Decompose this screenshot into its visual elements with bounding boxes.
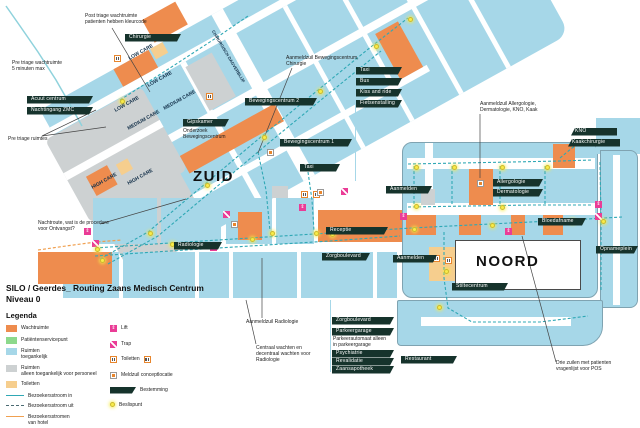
destination-tag-gipskamer: Gipskamer — [183, 119, 229, 127]
destination-tag-zaansapotheek: Zaansapotheek — [332, 366, 394, 374]
room-block — [272, 186, 288, 198]
decision-point-icon — [414, 165, 419, 170]
legend-item-meldzuil-conceptlocatie-label: Meldzuil conceptlocatie — [121, 372, 173, 378]
room-block — [459, 215, 481, 235]
stairs-icon — [92, 240, 99, 247]
legend-panel: SILO / Geerdes_ Routing Zaans Medisch Ce… — [6, 283, 226, 428]
decision-point-icon — [374, 44, 379, 49]
decision-point-icon — [500, 165, 505, 170]
lift-icon: ⇕ — [505, 228, 512, 235]
legend-item-meldzuil-conceptlocatie: Meldzuil conceptlocatie — [110, 372, 222, 379]
destination-tag-dermatologie: Dermatologie — [493, 189, 543, 197]
area-label-zuid: ZUID — [193, 168, 234, 185]
destination-tag-stiltecentrum: Stiltecentrum — [452, 283, 508, 291]
legend-item-pati-ntenservicepunt: Patiëntenservicepunt — [6, 337, 110, 344]
decision-point-icon — [412, 227, 417, 232]
room-block — [355, 66, 356, 181]
decision-point-icon — [444, 269, 449, 274]
decision-point-icon — [500, 205, 505, 210]
legend-item-ruimten: Ruimten toegankelijk — [6, 348, 110, 360]
destination-tag-taxi: Taxi — [356, 67, 402, 75]
destination-tag-restaurant: Restaurant — [401, 356, 457, 364]
legend-item-toiletten: Toiletten — [110, 356, 222, 363]
callout-post-triage-wachtruimte-patiente: Post triage wachtruimte patienten hebben… — [85, 13, 147, 25]
room-block — [330, 300, 331, 372]
legend-heading: Legenda — [6, 311, 226, 320]
legend-flow-line — [6, 405, 24, 406]
lift-icon: ⇕ — [299, 204, 306, 211]
legend-item-toiletten-label: Toiletten — [121, 356, 140, 362]
destination-tag-fietsenstalling: Fietsenstalling — [356, 100, 402, 108]
decision-point-icon — [601, 219, 606, 224]
room-block — [238, 212, 262, 240]
toilet-icon — [110, 356, 117, 363]
decision-point-icon — [262, 135, 267, 140]
legend-swatch — [6, 348, 17, 355]
destination-tag-bewegingscentrum-1: Bewegingscentrum 1 — [280, 139, 352, 147]
destination-tag-nachtingang-zmc: Nachtingang ZMC — [27, 107, 93, 115]
toilet-icon — [144, 356, 151, 363]
noord-south-band — [397, 300, 603, 346]
legend-swatch — [6, 381, 17, 388]
radiologie-block — [38, 252, 112, 284]
destination-tag-kiss-and-ride: Kiss and ride — [356, 89, 402, 97]
legend-item-toiletten: Toiletten — [6, 381, 110, 388]
destination-tag-bloedafname: Bloedafname — [538, 218, 586, 226]
legend-item-wachtruimte-label: Wachtruimte — [21, 325, 49, 331]
decision-point-icon — [100, 258, 105, 263]
legend-item-beslispunt: Beslispunt — [110, 402, 222, 408]
callout-aanmeldzuil-allergologie-dermato: Aanmeldzuil Allergologie, Dermatologie, … — [480, 101, 538, 113]
destination-tag-sample — [110, 387, 136, 394]
destination-tag-parkeergarage: Parkeergarage — [332, 328, 394, 336]
legend-item-trap: Trap — [110, 341, 222, 348]
callout-parkeerautomaat-alleen-in-parkee: Parkeerautomaat alleen in parkeergarage — [333, 336, 386, 348]
destination-tag-aanmelden: Aanmelden — [386, 186, 432, 194]
destination-tag-taxi: Taxi — [300, 164, 340, 172]
routing-map-canvas: ⇕⇕⇕⇕⇕⇕ ChirurgieAcuut centrumNachtingang… — [0, 0, 640, 428]
room-block — [276, 198, 314, 244]
destination-tag-acuut-centrum: Acuut centrum — [27, 96, 93, 104]
decision-point-icon — [452, 165, 457, 170]
callout-onderzoek-bewegingscentrum: Onderzoek Bewegingscentrum — [183, 128, 226, 140]
legend-item-lift-label: Lift — [121, 325, 128, 331]
lift-icon: ⇕ — [400, 213, 407, 220]
destination-tag-aanmelden: Aanmelden — [393, 255, 437, 263]
destination-tag-receptie: Receptie — [326, 227, 388, 235]
legend-flow-line — [6, 395, 24, 396]
room-block — [150, 42, 168, 59]
room-block — [233, 252, 297, 298]
legend-item-bezoekersstroom-uit: Bezoekersstroom uit — [6, 403, 110, 409]
destination-tag-psychiatrie: Psychiatrie — [332, 350, 394, 358]
legend-item-beslispunt-label: Beslispunt — [119, 402, 142, 408]
legend-item-bezoekersstroom-in-label: Bezoekersstroom in — [28, 393, 72, 399]
callout-pre-triage-wachtruimte-5-minuten: Pre triage wachtruimte 5 minuten max — [12, 60, 62, 72]
decision-point-icon — [437, 305, 442, 310]
decision-point-icon — [148, 231, 153, 236]
destination-tag-zorgboulevard: Zorgboulevard — [332, 317, 394, 325]
meldzuil-icon — [317, 189, 324, 196]
destination-tag-allergologie: Allergologie — [493, 179, 543, 187]
stairs-icon — [341, 188, 348, 195]
callout-drie-zuilen-met-patienten-vragen: Drie zuilen met patienten vragenlijst vo… — [556, 360, 611, 372]
room-block — [421, 317, 571, 326]
room-block — [406, 215, 436, 235]
room-block — [469, 169, 493, 205]
decision-point-icon — [408, 17, 413, 22]
opnameplein-strip — [600, 150, 638, 308]
destination-tag-zorgboulevard: Zorgboulevard — [322, 253, 370, 261]
legend-swatch — [6, 325, 17, 332]
toilet-icon — [206, 93, 213, 100]
toilet-icon — [114, 55, 121, 62]
room-block — [553, 144, 575, 168]
meldzuil-icon — [267, 149, 274, 156]
legend-item-lift: ⇕Lift — [110, 325, 222, 332]
destination-tag-bus: Bus — [356, 78, 402, 86]
kno-wing — [596, 118, 640, 154]
stairs-icon — [223, 211, 230, 218]
room-block — [116, 158, 133, 175]
legend-swatch — [6, 337, 17, 344]
map-subtitle: Niveau 0 — [6, 294, 226, 305]
legend-flow-line — [6, 416, 24, 417]
toilet-icon — [445, 257, 452, 264]
lift-icon: ⇕ — [110, 325, 117, 332]
meldzuil-icon — [231, 221, 238, 228]
area-label-noord: NOORD — [476, 253, 539, 270]
callout-nachtroute-wat-is-de-procedure-v: Nachtroute, wat is de procedure voor Ont… — [38, 220, 109, 232]
decision-point-icon — [314, 231, 319, 236]
lift-icon: ⇕ — [595, 201, 602, 208]
room-block — [511, 215, 525, 235]
destination-tag-revalidatie: Revalidatie — [332, 358, 394, 366]
legend-item-toiletten-label: Toiletten — [21, 381, 40, 387]
destination-tag-opnameplein: Opnameplein — [596, 246, 638, 254]
decision-point-icon — [414, 204, 419, 209]
receptie-block — [318, 210, 402, 242]
map-title: SILO / Geerdes_ Routing Zaans Medisch Ce… — [6, 283, 226, 294]
destination-tag-kno: KNO — [571, 128, 617, 136]
decision-point-icon — [270, 231, 275, 236]
decision-point-icon — [318, 89, 323, 94]
room-block — [161, 198, 221, 244]
room-block — [613, 155, 620, 305]
legend-item-trap-label: Trap — [121, 341, 131, 347]
callout-pre-triage-ruimtes: Pre triage ruimtes — [8, 136, 47, 142]
legend-swatch — [6, 365, 17, 372]
legend-item-ruimten-label: Ruimten toegankelijk — [21, 348, 47, 360]
legend-item-bestemming-label: Bestemming — [140, 387, 168, 393]
decision-point-icon — [110, 402, 115, 407]
callout-centraal-wachten-en-decentraal-w: Centraal wachten en decentraal wachten v… — [256, 345, 310, 363]
destination-tag-bewegingscentrum-2: Bewegingscentrum 2 — [245, 98, 317, 106]
legend-item-wachtruimte: Wachtruimte — [6, 325, 110, 332]
legend-item-ruimten: Ruimten alleen toegankelijk voor persone… — [6, 365, 110, 377]
destination-tag-chirurgie: Chirurgie — [125, 34, 181, 42]
legend-item-bezoekersstroom-uit-label: Bezoekersstroom uit — [28, 403, 74, 409]
meldzuil-icon — [477, 180, 484, 187]
legend-item-ruimten-label: Ruimten alleen toegankelijk voor persone… — [21, 365, 97, 377]
destination-tag-kaakchirurgie: Kaakchirurgie — [568, 139, 620, 147]
stairs-icon — [110, 341, 117, 348]
legend-item-bezoekersstroom-in: Bezoekersstroom in — [6, 393, 110, 399]
decision-point-icon — [545, 165, 550, 170]
decision-point-icon — [250, 237, 255, 242]
legend-item-pati-ntenservicepunt-label: Patiëntenservicepunt — [21, 337, 68, 343]
legend-item-bestemming: Bestemming — [110, 387, 222, 394]
meldzuil-icon — [110, 372, 117, 379]
callout-aanmeldzuil-radiologie: Aanmeldzuil Radiologie — [246, 319, 298, 325]
destination-tag-radiologie: Radiologie — [174, 242, 222, 250]
legend-item-bezoekersstromen: Bezoekersstromen van hotel — [6, 414, 110, 426]
decision-point-icon — [490, 223, 495, 228]
room-block — [429, 247, 455, 281]
callout-aanmeldzuil-bewegingscentrum-chi: Aanmeldzuil Bewegingscentrum, Chirurgie — [286, 55, 359, 67]
legend-item-bezoekersstromen-label: Bezoekersstromen van hotel — [28, 414, 70, 426]
decision-point-icon — [95, 247, 100, 252]
toilet-icon — [301, 191, 308, 198]
